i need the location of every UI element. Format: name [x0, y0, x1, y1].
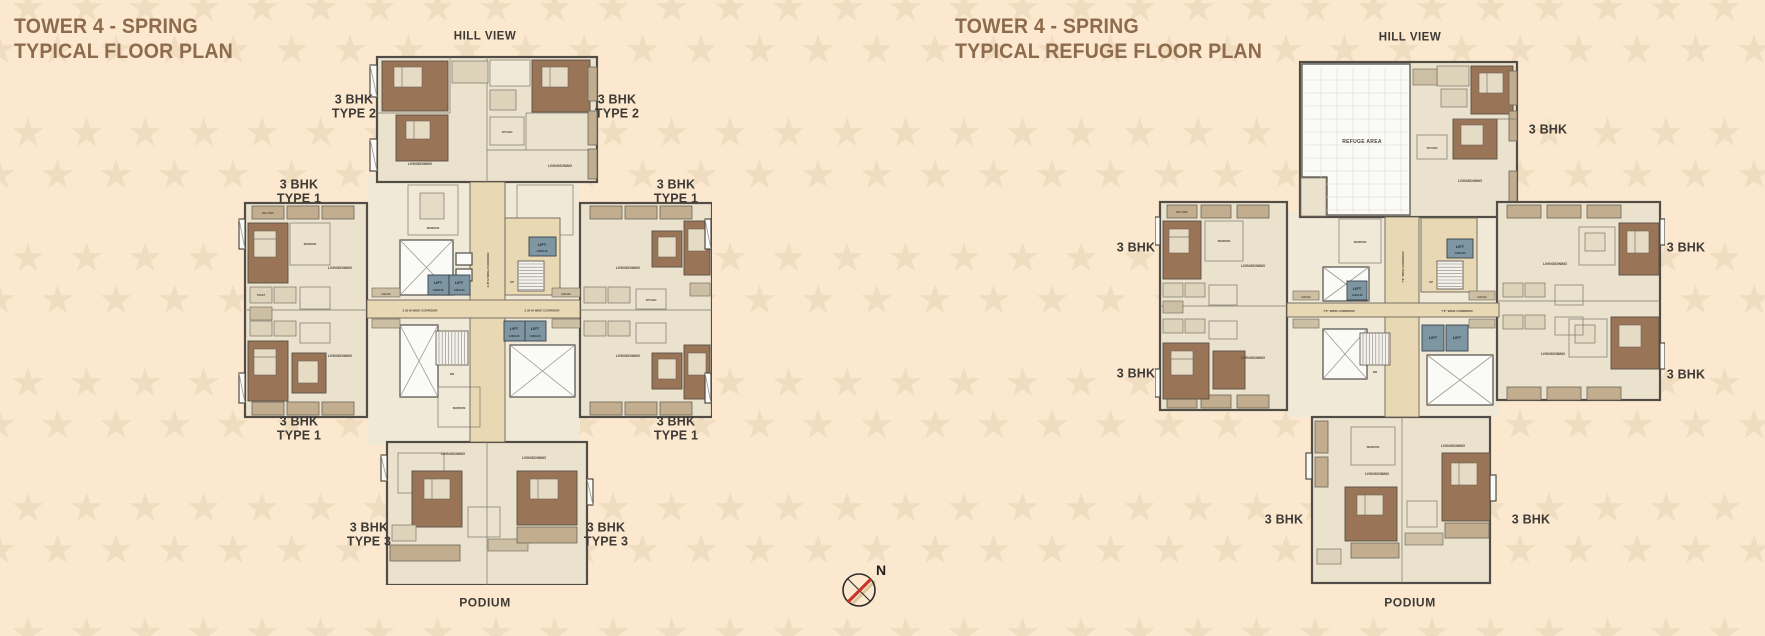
- star-icon: ★: [1736, 405, 1765, 445]
- lift-size-label: 1.60X1.60: [1352, 294, 1364, 297]
- room-label-chajja: CHAJJA: [561, 293, 571, 296]
- podium-label-right: PODIUM: [1384, 596, 1436, 610]
- room-label-chajja: CHAJJA: [1477, 296, 1487, 299]
- star-icon: ★: [1678, 30, 1714, 70]
- label-line: 3 BHK: [584, 522, 628, 536]
- star-icon: ★: [40, 405, 76, 445]
- lift: LIFT 1.60X1.60: [1447, 239, 1473, 258]
- star-icon: ★: [40, 155, 76, 195]
- label-line: TYPE 2: [332, 107, 376, 121]
- star-icon: ★: [800, 405, 836, 445]
- unit-label-3bhk-bottom-right: 3 BHK: [1512, 513, 1551, 527]
- star-icon: ★: [859, 30, 895, 70]
- star-icon: ★: [98, 530, 134, 570]
- star-icon: ★: [712, 363, 748, 403]
- toilet-room: [1525, 315, 1545, 329]
- toilet-room: [1317, 549, 1341, 564]
- star-icon: ★: [1180, 613, 1216, 636]
- star-icon: ★: [859, 280, 895, 320]
- toilet-room: [1185, 283, 1205, 297]
- star-icon: ★: [1122, 113, 1158, 153]
- toilet-room: [1163, 283, 1183, 297]
- unit-label-3bhk-left-mid: 3 BHK: [1117, 241, 1156, 255]
- unit-label-3bhk-bottom-left: 3 BHK: [1265, 513, 1304, 527]
- lift: LIFT: [1446, 325, 1468, 351]
- dry-balcony: [1405, 533, 1443, 545]
- unit-label-type1-upper-right: 3 BHK TYPE 1: [654, 179, 698, 206]
- label-line: 3 BHK: [654, 179, 698, 193]
- star-icon: ★: [1063, 363, 1099, 403]
- star-icon: ★: [1093, 280, 1129, 320]
- star-icon: ★: [946, 613, 982, 636]
- corridor-label: 7'6" WIDE CORRIDOR: [1401, 251, 1405, 283]
- star-icon: ★: [10, 113, 46, 153]
- title-line: TOWER 4 - SPRING: [14, 14, 233, 39]
- star-icon: ★: [157, 405, 193, 445]
- star-icon: ★: [1414, 613, 1450, 636]
- right-wing: KITCHEN LIVING/DINING LIVING/DINING: [580, 203, 712, 417]
- staircase: [1437, 261, 1463, 289]
- star-icon: ★: [742, 155, 778, 195]
- lift-label: LIFT: [1429, 335, 1438, 340]
- star-icon: ★: [0, 155, 17, 195]
- star-icon: ★: [98, 280, 134, 320]
- room-label-bedroom: BEDROOM: [1367, 446, 1379, 449]
- star-icon: ★: [976, 530, 1012, 570]
- star-icon: ★: [537, 0, 573, 28]
- star-icon: ★: [186, 113, 222, 153]
- star-icon: ★: [1297, 0, 1333, 28]
- room-label-living-dining: LIVING/DINING: [408, 162, 432, 166]
- room-label-bedroom: BEDROOM: [304, 243, 316, 246]
- label-line: TYPE 2: [595, 107, 639, 121]
- star-icon: ★: [1034, 155, 1070, 195]
- star-icon: ★: [654, 0, 690, 28]
- lift-label: LIFT: [1353, 286, 1362, 291]
- top-wing: KITCHEN LIVING/DINING LIVING/DINING: [370, 57, 597, 182]
- star-icon: ★: [1034, 280, 1070, 320]
- lift: LIFT: [1422, 325, 1444, 351]
- star-icon: ★: [1034, 530, 1070, 570]
- label-line: 3 BHK: [332, 94, 376, 108]
- corridor-label: 2.35 M WIDE CORRIDOR: [524, 309, 560, 313]
- lift-label: LIFT: [538, 242, 547, 247]
- star-icon: ★: [1239, 613, 1275, 636]
- room-label-living-dining: LIVING/DINING: [1241, 356, 1265, 360]
- corridor-label: 2.35 M WIDE CORRIDOR: [402, 309, 438, 313]
- star-icon: ★: [595, 613, 631, 636]
- star-icon: ★: [771, 363, 807, 403]
- top-wing: REFUGE AREA KITCHEN LIVING/DINING: [1300, 62, 1517, 217]
- label-line: TYPE 1: [277, 429, 321, 443]
- star-icon: ★: [69, 488, 105, 528]
- star-icon: ★: [98, 155, 134, 195]
- star-icon: ★: [1122, 488, 1158, 528]
- left-wing: BALCONY BEDROOM LIVING/DINING LIVING/DIN…: [1155, 202, 1287, 410]
- lift: LIFT 1.60X1.60: [428, 275, 449, 295]
- star-icon: ★: [0, 405, 17, 445]
- label-line: TYPE 3: [347, 535, 391, 549]
- compass-north-label: N: [876, 562, 886, 578]
- star-icon: ★: [1473, 613, 1509, 636]
- star-icon: ★: [859, 155, 895, 195]
- hill-view-label-right: HILL VIEW: [1379, 31, 1441, 45]
- star-icon: ★: [888, 238, 924, 278]
- toilet-room: [1503, 283, 1523, 297]
- star-icon: ★: [771, 488, 807, 528]
- room-label-bedroom: BEDROOM: [427, 227, 439, 230]
- star-icon: ★: [69, 238, 105, 278]
- label-line: TYPE 1: [654, 192, 698, 206]
- star-icon: ★: [917, 155, 953, 195]
- star-icon: ★: [420, 0, 456, 28]
- unit-label-type2-right: 3 BHK TYPE 2: [595, 94, 639, 121]
- label-line: TYPE 3: [584, 535, 628, 549]
- room-label-up: UP: [510, 280, 514, 284]
- star-icon: ★: [595, 0, 631, 28]
- star-icon: ★: [800, 30, 836, 70]
- lift-size-label: 1.60X1.60: [537, 250, 549, 253]
- star-icon: ★: [1707, 613, 1743, 636]
- room-label-bedroom: BEDROOM: [1218, 240, 1230, 243]
- star-icon: ★: [127, 238, 163, 278]
- star-icon: ★: [10, 613, 46, 636]
- unit-label-type1-lower-left: 3 BHK TYPE 1: [277, 416, 321, 443]
- bottom-wing: BEDROOM LIVING/DINING LIVING/DINING: [1306, 417, 1496, 583]
- room-label-balcony: BALCONY: [262, 212, 274, 215]
- unit-label-type1-lower-right: 3 BHK TYPE 1: [654, 416, 698, 443]
- toilet-room: [608, 287, 630, 303]
- room-label-kitchen: KITCHEN: [1427, 147, 1438, 150]
- room-label-living-dining: LIVING/DINING: [441, 452, 465, 456]
- toilet-room: [392, 525, 416, 541]
- star-icon: ★: [888, 363, 924, 403]
- toilet-room: [274, 321, 296, 336]
- toilet-room: [452, 61, 488, 83]
- star-icon: ★: [186, 488, 222, 528]
- star-icon: ★: [0, 280, 17, 320]
- star-icon: ★: [829, 488, 865, 528]
- lift: LIFT 1.60X1.60: [449, 275, 470, 295]
- room-label-up: UP: [1429, 280, 1433, 284]
- room-label-living-dining: LIVING/DINING: [616, 266, 640, 270]
- label-line: TYPE 1: [277, 192, 321, 206]
- walk-in-room: [490, 60, 530, 86]
- star-icon: ★: [1678, 155, 1714, 195]
- star-icon: ★: [1736, 530, 1765, 570]
- label-line: 3 BHK: [277, 179, 321, 193]
- star-icon: ★: [186, 363, 222, 403]
- lift-size-label: 1.60X1.60: [509, 335, 521, 338]
- star-icon: ★: [771, 238, 807, 278]
- star-icon: ★: [0, 530, 17, 570]
- label-line: 3 BHK: [277, 416, 321, 430]
- left-plan-title: TOWER 4 - SPRING TYPICAL FLOOR PLAN: [14, 14, 233, 64]
- lift-label: LIFT: [531, 326, 540, 331]
- lift-size-label: 1.60X1.60: [433, 289, 445, 292]
- lift-label: LIFT: [434, 280, 443, 285]
- star-icon: ★: [1093, 530, 1129, 570]
- star-icon: ★: [1414, 0, 1450, 28]
- star-icon: ★: [303, 0, 339, 28]
- toilet-room: [1503, 315, 1523, 329]
- star-icon: ★: [1678, 405, 1714, 445]
- star-icon: ★: [1063, 488, 1099, 528]
- star-icon: ★: [712, 488, 748, 528]
- star-icon: ★: [829, 238, 865, 278]
- star-icon: ★: [1122, 613, 1158, 636]
- room-label-living-dining: LIVING/DINING: [1241, 264, 1265, 268]
- star-icon: ★: [127, 488, 163, 528]
- star-icon: ★: [303, 613, 339, 636]
- star-icon: ★: [946, 113, 982, 153]
- star-icon: ★: [69, 363, 105, 403]
- star-icon: ★: [361, 613, 397, 636]
- star-icon: ★: [976, 280, 1012, 320]
- star-icon: ★: [1648, 613, 1684, 636]
- label-line: TYPE 1: [654, 429, 698, 443]
- toilet-room: [584, 321, 606, 336]
- star-icon: ★: [10, 238, 46, 278]
- star-icon: ★: [946, 488, 982, 528]
- star-icon: ★: [1093, 405, 1129, 445]
- star-icon: ★: [1005, 613, 1041, 636]
- bottom-wing: BEDROOM LIVING/DINING LIVING/DINING: [381, 442, 593, 585]
- room-label-living-dining: LIVING/DINING: [1441, 444, 1465, 448]
- star-icon: ★: [1678, 530, 1714, 570]
- star-icon: ★: [829, 113, 865, 153]
- label-line: 3 BHK: [347, 522, 391, 536]
- unit-label-3bhk-left-low: 3 BHK: [1117, 367, 1156, 381]
- toilet-room: [1525, 283, 1545, 297]
- star-icon: ★: [40, 280, 76, 320]
- unit-label-3bhk-right-top: 3 BHK: [1529, 123, 1568, 137]
- unit-label-type3-right: 3 BHK TYPE 3: [584, 522, 628, 549]
- room-label-chajja: CHAJJA: [1301, 296, 1311, 299]
- star-icon: ★: [1707, 113, 1743, 153]
- staircase: [518, 261, 544, 291]
- star-icon: ★: [1736, 30, 1765, 70]
- staircase: [1360, 333, 1390, 365]
- star-icon: ★: [1063, 613, 1099, 636]
- star-icon: ★: [186, 238, 222, 278]
- room-label-living-dining: LIVING/DINING: [1365, 472, 1389, 476]
- star-icon: ★: [10, 488, 46, 528]
- star-icon: ★: [1297, 613, 1333, 636]
- toilet-room: [1185, 319, 1205, 333]
- unit-label-type2-left: 3 BHK TYPE 2: [332, 94, 376, 121]
- room-label-living-dining: LIVING/DINING: [1541, 352, 1565, 356]
- star-icon: ★: [157, 280, 193, 320]
- star-icon: ★: [1063, 113, 1099, 153]
- star-icon: ★: [1648, 0, 1684, 28]
- dry-balcony: [1163, 301, 1183, 313]
- room-label-living-dining: LIVING/DINING: [522, 456, 546, 460]
- star-icon: ★: [1531, 0, 1567, 28]
- star-icon: ★: [478, 0, 514, 28]
- toilet-room: [584, 287, 606, 303]
- dry-balcony: [690, 283, 710, 296]
- star-icon: ★: [946, 238, 982, 278]
- star-icon: ★: [1473, 0, 1509, 28]
- star-icon: ★: [1590, 613, 1626, 636]
- star-icon: ★: [829, 363, 865, 403]
- balcony-strips: [588, 67, 597, 179]
- star-icon: ★: [917, 30, 953, 70]
- room-label-bedroom: BEDROOM: [453, 407, 465, 410]
- star-icon: ★: [742, 280, 778, 320]
- star-icon: ★: [976, 405, 1012, 445]
- room-label-kitchen: KITCHEN: [646, 299, 657, 302]
- toilet-room: [490, 90, 516, 110]
- star-icon: ★: [98, 405, 134, 445]
- star-icon: ★: [859, 405, 895, 445]
- star-icon: ★: [186, 613, 222, 636]
- label-line: 3 BHK: [595, 94, 639, 108]
- toilet-room: [274, 287, 296, 303]
- star-icon: ★: [40, 530, 76, 570]
- lift: LIFT 1.60X1.60: [525, 321, 546, 341]
- star-icon: ★: [1063, 238, 1099, 278]
- room-label-kitchen: KITCHEN: [502, 131, 513, 134]
- room-label-chajja: CHAJJA: [381, 293, 391, 296]
- star-icon: ★: [712, 0, 748, 28]
- star-icon: ★: [1005, 238, 1041, 278]
- typical-floor-plan-drawing: KITCHEN LIVING/DINING LIVING/DINING: [238, 55, 712, 585]
- duct: [456, 253, 472, 265]
- star-icon: ★: [1707, 488, 1743, 528]
- star-icon: ★: [69, 113, 105, 153]
- star-icon: ★: [712, 238, 748, 278]
- room-label-living-dining: LIVING/DINING: [1458, 179, 1482, 183]
- label-line: 3 BHK: [654, 416, 698, 430]
- star-icon: ★: [127, 613, 163, 636]
- lift-size-label: 1.60X1.60: [530, 335, 542, 338]
- star-icon: ★: [1005, 488, 1041, 528]
- star-icon: ★: [888, 113, 924, 153]
- star-icon: ★: [917, 280, 953, 320]
- lift-label: LIFT: [510, 326, 519, 331]
- star-icon: ★: [157, 530, 193, 570]
- star-icon: ★: [888, 488, 924, 528]
- room-label-living-dining: LIVING/DINING: [328, 266, 352, 270]
- star-icon: ★: [800, 155, 836, 195]
- star-icon: ★: [829, 0, 865, 28]
- star-icon: ★: [1736, 155, 1765, 195]
- room-label-living-dining: LIVING/DINING: [1543, 262, 1567, 266]
- star-icon: ★: [1356, 0, 1392, 28]
- right-wing: LIVING/DINING LIVING/DINING: [1497, 202, 1665, 400]
- star-icon: ★: [1707, 238, 1743, 278]
- star-icon: ★: [1736, 280, 1765, 320]
- star-icon: ★: [742, 530, 778, 570]
- hill-view-label-left: HILL VIEW: [454, 30, 516, 44]
- unit-label-type3-left: 3 BHK TYPE 3: [347, 522, 391, 549]
- room-label-dn: DN: [450, 372, 454, 376]
- star-icon: ★: [10, 363, 46, 403]
- star-icon: ★: [654, 613, 690, 636]
- star-icon: ★: [127, 113, 163, 153]
- star-icon: ★: [800, 280, 836, 320]
- star-icon: ★: [771, 113, 807, 153]
- lift-label: LIFT: [1453, 335, 1462, 340]
- corridor-label: 2.35 M WIDE CORRIDOR: [486, 252, 490, 288]
- page-root: ★★★★★★★★★★★★★★★★★★★★★★★★★★★★★★★★★★★★★★★★…: [0, 0, 1765, 636]
- star-icon: ★: [1005, 113, 1041, 153]
- star-icon: ★: [742, 405, 778, 445]
- star-icon: ★: [1590, 0, 1626, 28]
- room-label-living-dining: LIVING/DINING: [328, 354, 352, 358]
- lift-size-label: 1.60X1.60: [454, 289, 466, 292]
- lift-label: LIFT: [1456, 244, 1465, 249]
- star-icon: ★: [1005, 363, 1041, 403]
- star-icon: ★: [976, 155, 1012, 195]
- north-compass-icon: N: [828, 556, 894, 622]
- star-icon: ★: [69, 613, 105, 636]
- lift-size-label: 1.60X1.60: [1455, 252, 1467, 255]
- toilet-room: [1441, 89, 1467, 107]
- room-label-toilet: TOILET: [257, 294, 266, 297]
- room-label-balcony: BALCONY: [1176, 211, 1188, 214]
- star-icon: ★: [712, 113, 748, 153]
- right-plan-title: TOWER 4 - SPRING TYPICAL REFUGE FLOOR PL…: [955, 14, 1262, 64]
- star-icon: ★: [1707, 363, 1743, 403]
- star-icon: ★: [127, 363, 163, 403]
- staircase: [436, 331, 468, 365]
- typical-refuge-floor-plan-drawing: REFUGE AREA KITCHEN LIVING/DINING: [1155, 55, 1665, 585]
- star-icon: ★: [157, 155, 193, 195]
- dry-balcony: [250, 307, 272, 320]
- room-label-dn: DN: [1373, 370, 1377, 374]
- unit-label-3bhk-right-low: 3 BHK: [1667, 368, 1706, 382]
- room-label-refuge-area: REFUGE AREA: [1342, 139, 1382, 145]
- star-icon: ★: [537, 613, 573, 636]
- room-label-living-dining: LIVING/DINING: [616, 354, 640, 358]
- corridor-label: 7'6" WIDE CORRIDOR: [1323, 309, 1355, 313]
- corridor-label: 7'6" WIDE CORRIDOR: [1441, 309, 1473, 313]
- title-line: TYPICAL REFUGE FLOOR PLAN: [955, 39, 1262, 64]
- room-label-bedroom: BEDROOM: [1354, 241, 1366, 244]
- star-icon: ★: [742, 30, 778, 70]
- lift: LIFT 1.60X1.60: [504, 321, 525, 341]
- toilet-room: [250, 321, 272, 336]
- star-icon: ★: [1093, 155, 1129, 195]
- star-icon: ★: [917, 405, 953, 445]
- star-icon: ★: [478, 613, 514, 636]
- star-icon: ★: [1531, 613, 1567, 636]
- lift-label: LIFT: [455, 280, 464, 285]
- podium-label-left: PODIUM: [459, 596, 511, 610]
- left-wing: BALCONY BEDROOM TOILET LIVING/DINING LIV…: [239, 203, 367, 417]
- toilet-room: [608, 321, 630, 336]
- dry-balcony: [1413, 69, 1437, 85]
- star-icon: ★: [244, 0, 280, 28]
- star-icon: ★: [1678, 280, 1714, 320]
- star-icon: ★: [771, 0, 807, 28]
- star-icon: ★: [1707, 0, 1743, 28]
- unit-label-type1-upper-left: 3 BHK TYPE 1: [277, 179, 321, 206]
- star-icon: ★: [946, 363, 982, 403]
- star-icon: ★: [771, 613, 807, 636]
- star-icon: ★: [361, 0, 397, 28]
- star-icon: ★: [888, 0, 924, 28]
- title-line: TYPICAL FLOOR PLAN: [14, 39, 233, 64]
- unit-label-3bhk-right-mid: 3 BHK: [1667, 241, 1706, 255]
- lift: LIFT 1.60X1.60: [1347, 281, 1367, 300]
- star-icon: ★: [917, 530, 953, 570]
- balcony-strips: [1509, 71, 1517, 203]
- star-icon: ★: [1034, 405, 1070, 445]
